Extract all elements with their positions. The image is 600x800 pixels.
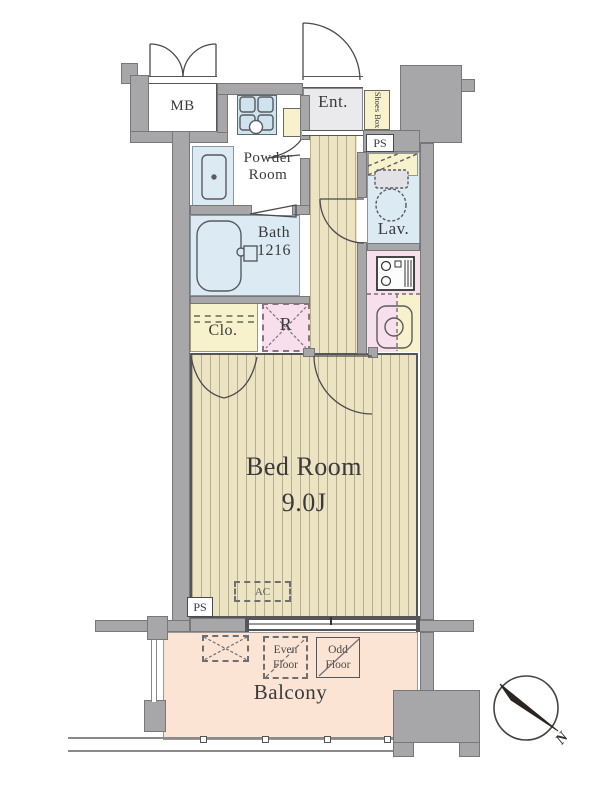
kitchen-sink <box>377 306 412 348</box>
toilet <box>375 170 408 221</box>
bedroom-label: Bed Room <box>190 452 418 482</box>
floor-plan: PS PS AC Even Floor Odd Floor <box>0 0 600 800</box>
powder-room-label: Powder Room <box>232 150 304 185</box>
vanity-sink <box>202 155 226 199</box>
bedroom-door <box>314 356 372 414</box>
stove <box>377 257 414 290</box>
balcony-box-cross <box>204 637 247 660</box>
lavatory-label: Lav. <box>367 219 420 239</box>
mb-label: MB <box>148 98 217 115</box>
bath-size-label: 1216 <box>246 242 302 260</box>
odd-floor-slash <box>319 639 359 676</box>
mb-double-door <box>150 44 216 77</box>
entrance-label: Ent. <box>303 92 363 112</box>
refrigerator-label: R <box>262 314 310 335</box>
balcony-label: Balcony <box>163 680 418 704</box>
closet-label: Clo. <box>192 322 254 340</box>
shoes-box-label: Shoes Box <box>364 90 390 130</box>
entrance-door <box>303 23 360 80</box>
closet-doors <box>191 357 257 398</box>
bath-door <box>250 205 296 217</box>
lavatory-door <box>320 199 364 243</box>
washing-machine-pan <box>240 97 273 134</box>
bedroom-size-label: 9.0J <box>190 488 418 518</box>
compass-north-label: N <box>552 728 573 748</box>
even-floor-slash <box>266 638 306 677</box>
bath-label: Bath 1216 <box>246 224 302 261</box>
compass: N <box>494 676 573 749</box>
